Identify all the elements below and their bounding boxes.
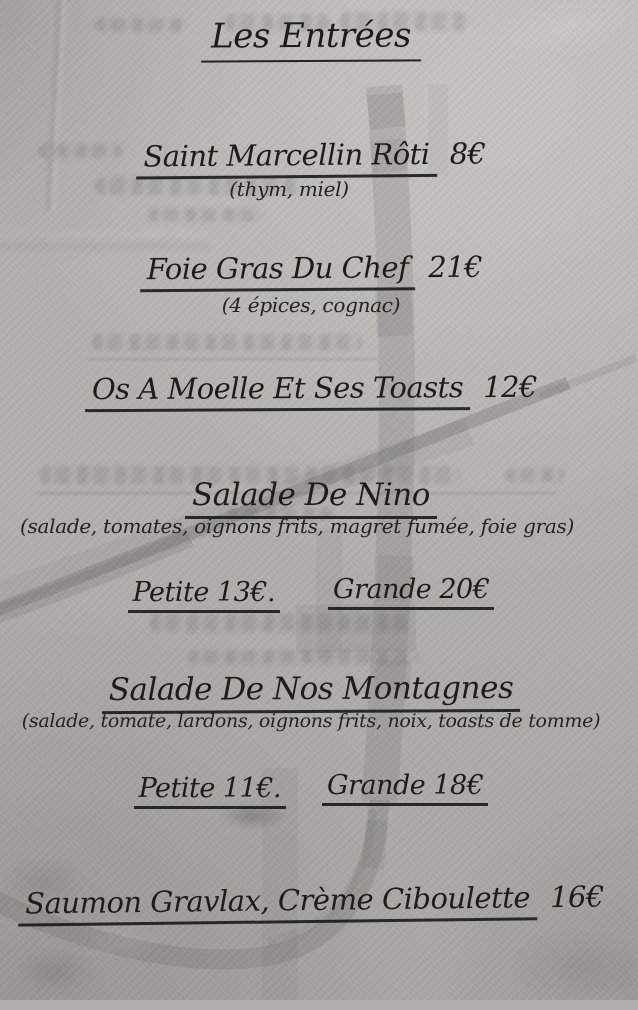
menu-item-os-a-moelle: Os A Moelle Et Ses Toasts12€ xyxy=(0,369,630,406)
item-details: (4 épices, cognac) xyxy=(0,293,630,317)
item-details: (thym, miel) xyxy=(0,177,608,201)
menu-item-salade-de-nino: Salade De Nino xyxy=(0,477,630,513)
menu-item-salade-montagnes: Salade De Nos Montagnes xyxy=(0,669,630,708)
section-title-text: Les Entrées xyxy=(201,15,421,62)
menu-section-title: Les Entrées xyxy=(0,14,630,57)
item-name: Os A Moelle Et Ses Toasts xyxy=(85,370,470,412)
item-name: Salade De Nos Montagnes xyxy=(102,670,521,714)
menu-text: Les Entrées Saint Marcellin Rôti8€ (thym… xyxy=(0,0,630,1000)
menu-item-saumon-gravlax: Saumon Gravlax, Crème Ciboulette16€ xyxy=(0,879,630,921)
menu-page-paper: Les Entrées Saint Marcellin Rôti8€ (thym… xyxy=(0,0,638,1000)
item-name: Saint Marcellin Rôti xyxy=(136,137,437,180)
menu-item-foie-gras: Foie Gras Du Chef21€ xyxy=(0,249,630,287)
item-name: Foie Gras Du Chef xyxy=(140,250,416,292)
item-price: 21€ xyxy=(415,250,482,284)
size-petite: Petite 11€. xyxy=(134,773,286,809)
item-name: Salade De Nino xyxy=(185,477,437,519)
item-details: (salade, tomate, lardons, oignons frits,… xyxy=(0,710,630,732)
size-options-montagnes: Petite 11€. Grande 18€ xyxy=(0,773,630,809)
item-name: Saumon Gravlax, Crème Ciboulette xyxy=(18,880,537,926)
size-petite: Petite 13€. xyxy=(128,577,280,613)
size-grande: Grande 18€ xyxy=(322,770,488,806)
item-price: 8€ xyxy=(436,136,485,170)
item-price: 12€ xyxy=(470,370,537,404)
size-options-nino: Petite 13€. Grande 20€ xyxy=(0,577,630,613)
size-grande: Grande 20€ xyxy=(328,574,494,610)
menu-item-saint-marcellin: Saint Marcellin Rôti8€ xyxy=(0,135,630,175)
item-price: 16€ xyxy=(537,879,604,914)
item-details: (salade, tomates, oignons frits, magret … xyxy=(0,514,616,538)
